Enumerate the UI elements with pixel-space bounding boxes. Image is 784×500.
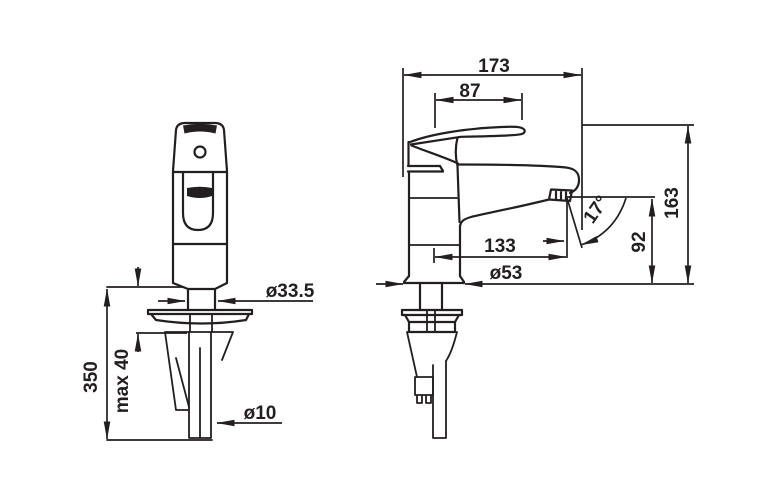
side-base-bottom xyxy=(404,276,464,283)
front-lever-face xyxy=(183,172,213,230)
side-back-lip xyxy=(408,166,443,172)
side-spout-top xyxy=(458,165,579,194)
front-base-dish xyxy=(151,314,249,324)
side-mount-cone xyxy=(407,332,457,377)
side-neck xyxy=(420,283,442,310)
side-supply-pipe xyxy=(433,361,446,438)
front-indicator-dot xyxy=(195,147,206,158)
side-view-dimensions: 173 87 133 17° 92 163 xyxy=(376,56,694,284)
side-spout-underside xyxy=(460,200,549,227)
front-view: 350 max 40 ø33.5 ø10 xyxy=(81,123,315,440)
front-supply-pipe xyxy=(189,332,211,438)
dim-label-base-diameter: ø53 xyxy=(490,263,523,284)
front-lever-shadow xyxy=(187,187,212,198)
side-lever-outline xyxy=(409,127,525,145)
side-body-front-edge xyxy=(456,138,460,223)
front-view-dimensions: 350 max 40 ø33.5 ø10 xyxy=(81,267,315,439)
dim-label-max-thickness: max 40 xyxy=(112,349,133,413)
front-mount-cone xyxy=(165,332,233,410)
dim-label-total-height: 163 xyxy=(662,187,683,219)
side-view: 173 87 133 17° 92 163 xyxy=(376,56,694,438)
side-dome-curve xyxy=(412,146,459,164)
dim-label-hole-diameter: ø33.5 xyxy=(266,281,315,302)
dim-stream-line xyxy=(567,198,582,248)
dim-label-spout-reach: 133 xyxy=(484,236,516,257)
faucet-dimension-diagram: 350 max 40 ø33.5 ø10 xyxy=(0,0,784,500)
dim-label-pipe-length: 350 xyxy=(81,361,102,393)
side-aerator xyxy=(549,190,572,202)
front-body-bottom xyxy=(173,283,227,289)
technical-drawing: 350 max 40 ø33.5 ø10 xyxy=(0,0,784,500)
side-mount-nut xyxy=(409,322,455,332)
dim-label-pipe-diameter: ø10 xyxy=(244,403,277,424)
front-neck xyxy=(188,290,215,310)
side-hose-nipple xyxy=(415,377,433,403)
dim-label-lever-length: 87 xyxy=(459,81,480,102)
dim-label-outlet-height: 92 xyxy=(629,231,650,252)
dim-label-total-length: 173 xyxy=(478,56,510,77)
front-base-plate xyxy=(148,310,252,314)
side-base-plate xyxy=(402,310,462,315)
front-handle-top-band xyxy=(183,124,217,134)
